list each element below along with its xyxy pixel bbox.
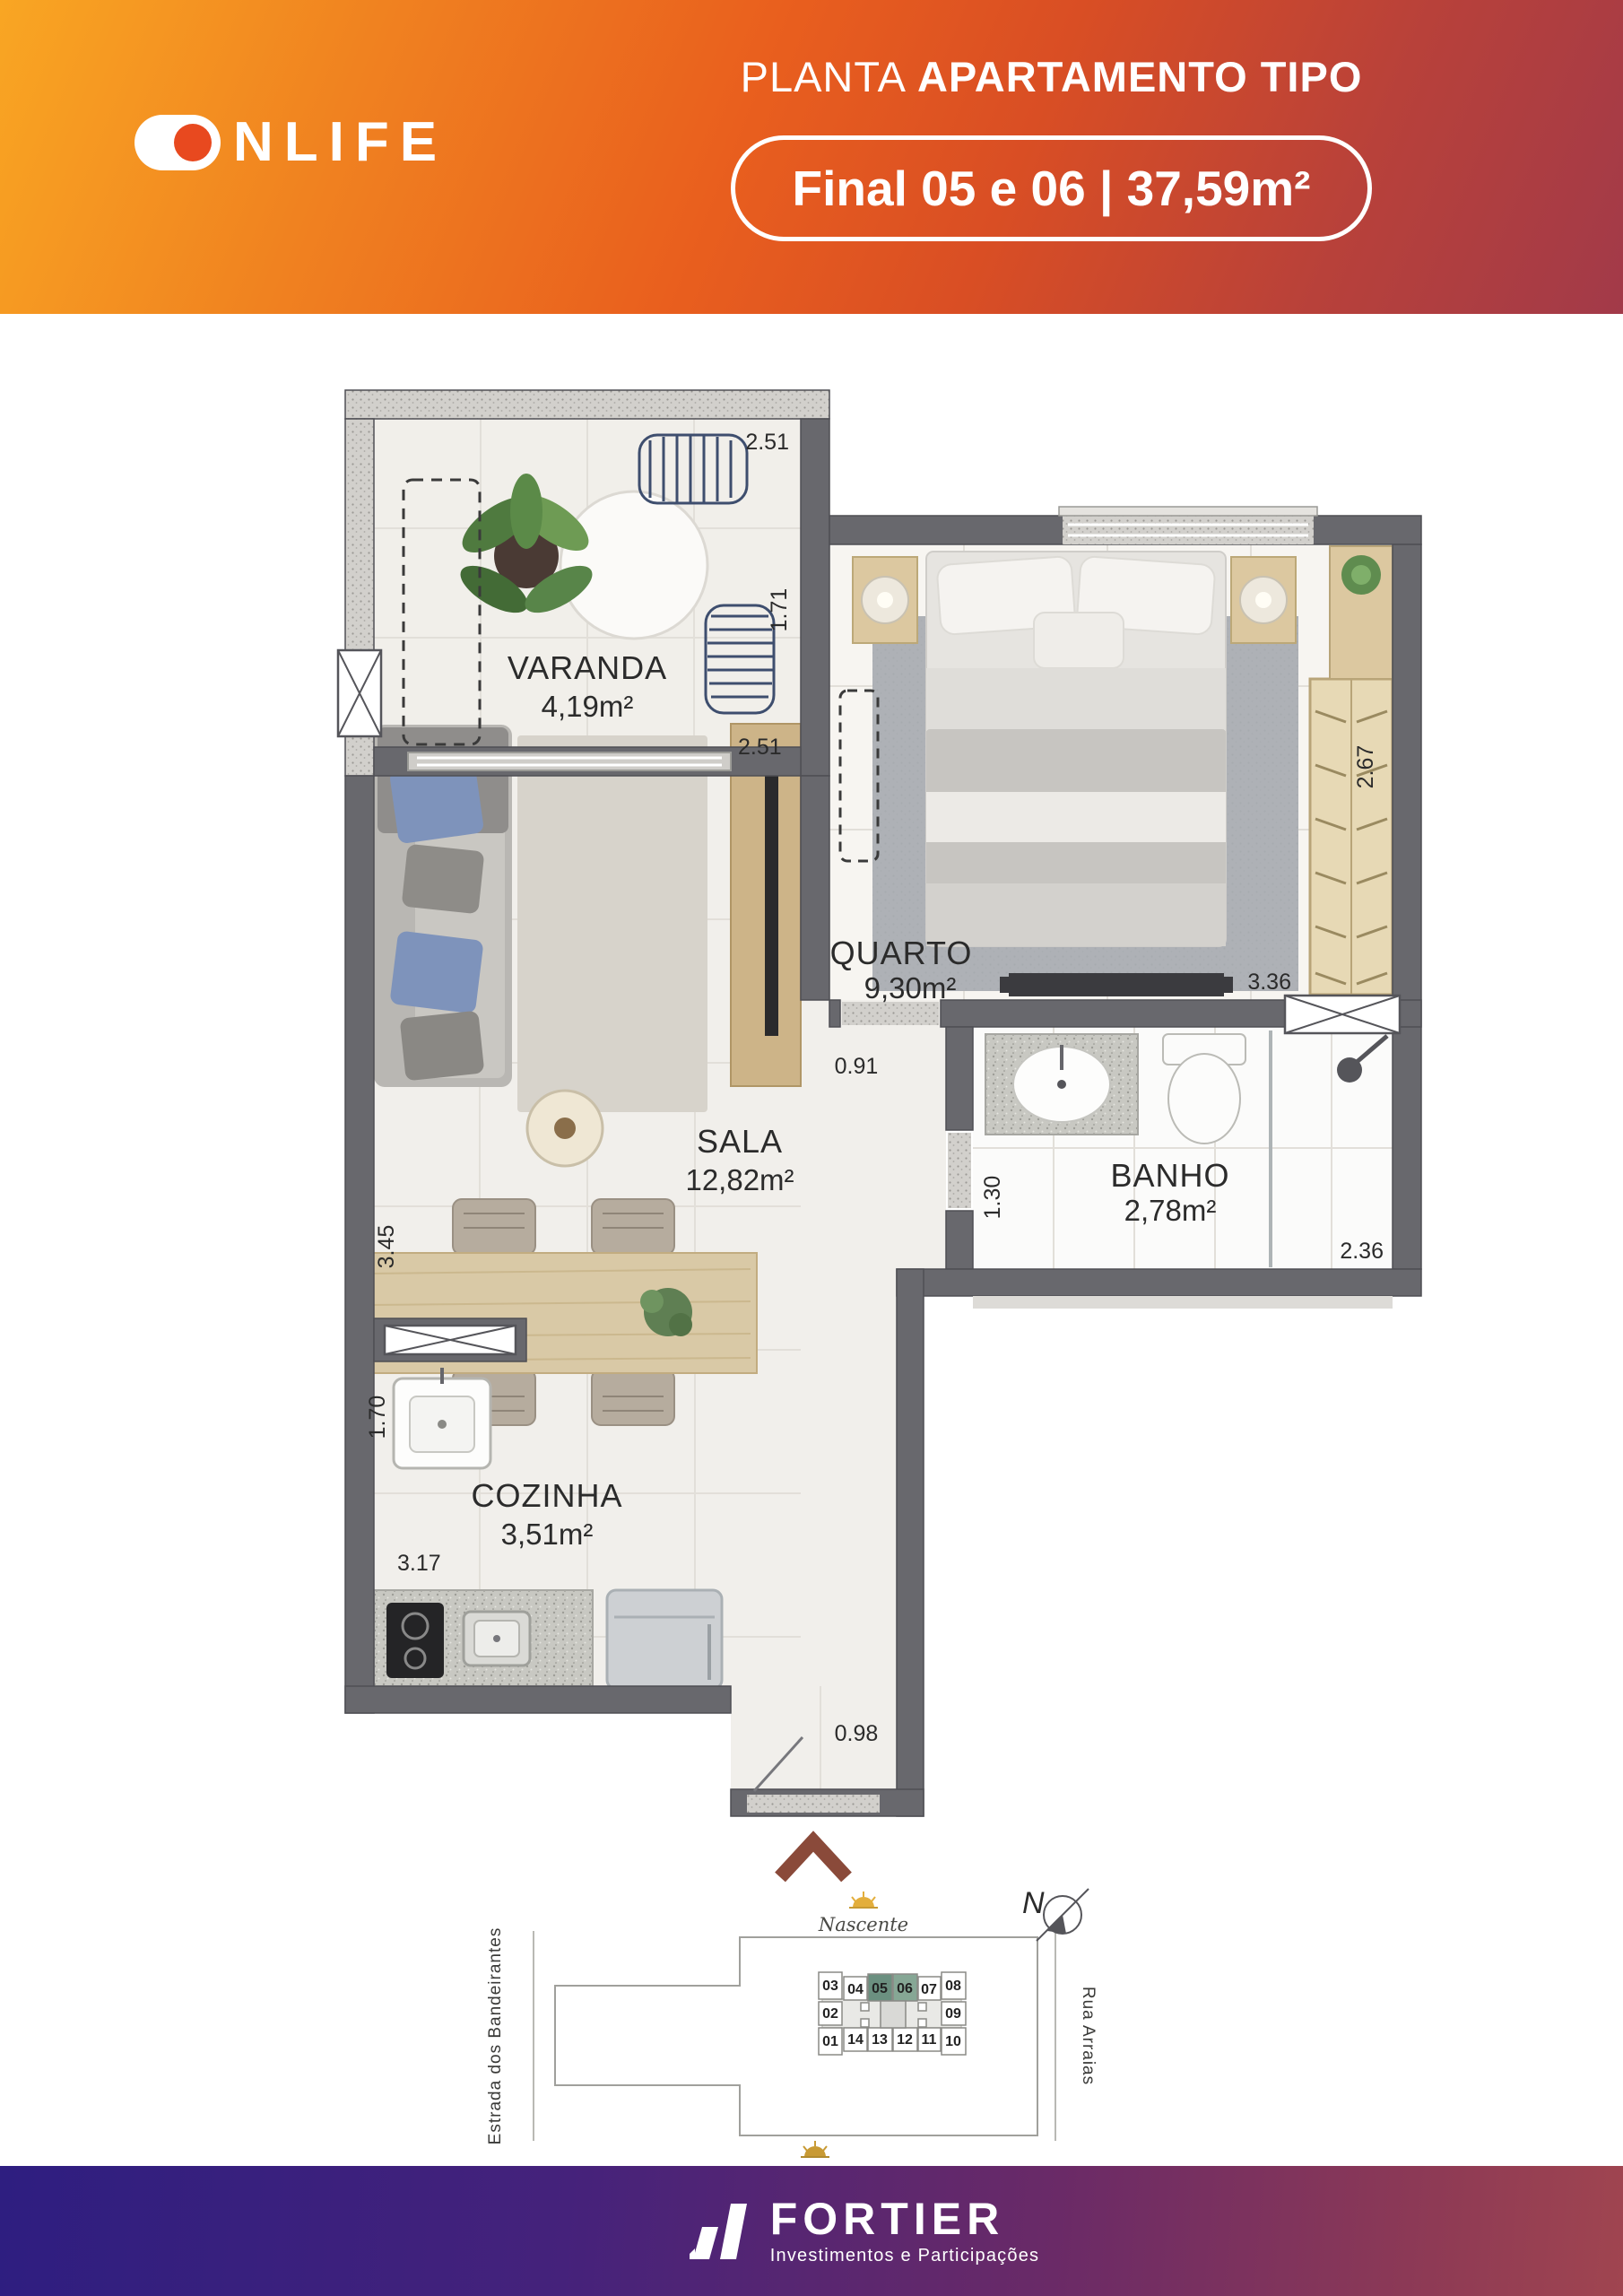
fortier-tagline: Investimentos e Participações <box>770 2246 1039 2266</box>
bath-counter <box>985 1034 1138 1135</box>
street-right-label: Rua Arraias <box>1079 1987 1098 2085</box>
dim-entry-width: 0.98 <box>835 1721 879 1746</box>
nightstand-right <box>1231 557 1296 643</box>
kitchen-counter <box>374 1590 593 1689</box>
dim-varanda-depth: 1.71 <box>767 588 792 632</box>
floor-plan-svg: VARANDA 4,19m² QUARTO 9,30m² SALA 12,82m… <box>318 381 1430 1906</box>
nightstand-left <box>853 557 917 643</box>
unit-area-badge: Final 05 e 06 | 37,59m² <box>731 135 1373 241</box>
dim-cozinha-width: 3.17 <box>397 1551 441 1576</box>
dim-quarto-width: 3.36 <box>1247 970 1291 995</box>
unit-01: 01 <box>822 2034 838 2049</box>
page-title-light: PLANTA <box>741 53 907 100</box>
dim-sala-width: 2.51 <box>738 735 782 760</box>
desk <box>1330 546 1393 679</box>
unit-08: 08 <box>945 1979 961 1994</box>
unit-06: 06 <box>897 1981 913 1996</box>
tv-dresser <box>1000 973 1233 996</box>
north-compass-icon: N <box>1022 1886 1089 1941</box>
dim-banho-depth: 1.30 <box>980 1176 1005 1220</box>
onlife-logo: NLIFE <box>135 115 447 170</box>
fortier-icon <box>682 2196 752 2266</box>
onlife-logo-text: NLIFE <box>233 115 447 170</box>
varanda-area: 4,19m² <box>542 690 634 723</box>
sala-area: 12,82m² <box>685 1163 794 1196</box>
unit-13: 13 <box>872 2032 888 2048</box>
dim-varanda-width: 2.51 <box>745 430 789 455</box>
quarto-area: 9,30m² <box>864 971 957 1004</box>
sofa <box>374 725 512 1087</box>
street-left-label: Estrada dos Bandeirantes <box>486 1927 505 2145</box>
page-title: PLANTAAPARTAMENTO TIPO <box>677 52 1426 101</box>
header-title-block: PLANTAAPARTAMENTO TIPO Final 05 e 06 | 3… <box>677 52 1426 241</box>
sala-label: SALA <box>697 1123 783 1160</box>
nascente-sun-icon <box>849 1892 878 1908</box>
page-title-bold: APARTAMENTO TIPO <box>917 53 1362 100</box>
double-bed <box>926 552 1226 946</box>
varanda-round-table <box>560 491 707 639</box>
onlife-o-toggle-icon <box>135 115 221 170</box>
wardrobe <box>1310 679 1393 995</box>
unit-12: 12 <box>897 2032 913 2048</box>
poente-sun-icon <box>801 2141 829 2157</box>
quarto-label: QUARTO <box>830 935 973 971</box>
fortier-brand: FORTIER <box>770 2196 1039 2242</box>
dim-banho-width: 2.36 <box>1340 1239 1384 1264</box>
unit-09: 09 <box>945 2006 961 2022</box>
laundry-sink <box>394 1368 490 1468</box>
footer-band: FORTIER Investimentos e Participações <box>0 2166 1623 2296</box>
unit-14: 14 <box>847 2032 864 2048</box>
unit-02: 02 <box>822 2006 838 2022</box>
cozinha-label: COZINHA <box>472 1477 623 1514</box>
dim-quarto-depth: 2.67 <box>1353 745 1378 789</box>
unit-11: 11 <box>922 2032 937 2048</box>
unit-07: 07 <box>921 1982 937 1997</box>
unit-03: 03 <box>822 1979 838 1994</box>
fridge <box>607 1590 722 1689</box>
north-letter: N <box>1022 1886 1045 1920</box>
fortier-logo: FORTIER Investimentos e Participações <box>584 2196 1039 2266</box>
sala-rug <box>517 735 707 1112</box>
unit-10: 10 <box>945 2034 961 2049</box>
dim-cozinha-depth: 1.70 <box>365 1396 390 1439</box>
building-units <box>819 1972 966 2055</box>
unit-04: 04 <box>847 1982 864 1997</box>
banho-label: BANHO <box>1110 1157 1229 1194</box>
banho-area: 2,78m² <box>1124 1194 1217 1227</box>
tv-panel <box>731 724 801 1086</box>
dim-hall-door: 0.91 <box>835 1054 879 1079</box>
header-band: NLIFE PLANTAAPARTAMENTO TIPO Final 05 e … <box>0 0 1623 314</box>
floor-plan: VARANDA 4,19m² QUARTO 9,30m² SALA 12,82m… <box>318 381 1430 1910</box>
site-plan: Estrada dos Bandeirantes Rua Arraias 03 … <box>395 1861 1219 2197</box>
unit-05: 05 <box>872 1981 888 1996</box>
onlife-o-dot-icon <box>174 124 212 161</box>
side-table <box>527 1091 603 1166</box>
dim-sala-height: 3.45 <box>374 1225 399 1269</box>
cozinha-area: 3,51m² <box>501 1518 594 1551</box>
nascente-label: Nascente <box>818 1914 908 1935</box>
varanda-label: VARANDA <box>508 649 667 686</box>
site-plan-svg: Estrada dos Bandeirantes Rua Arraias 03 … <box>395 1861 1219 2193</box>
